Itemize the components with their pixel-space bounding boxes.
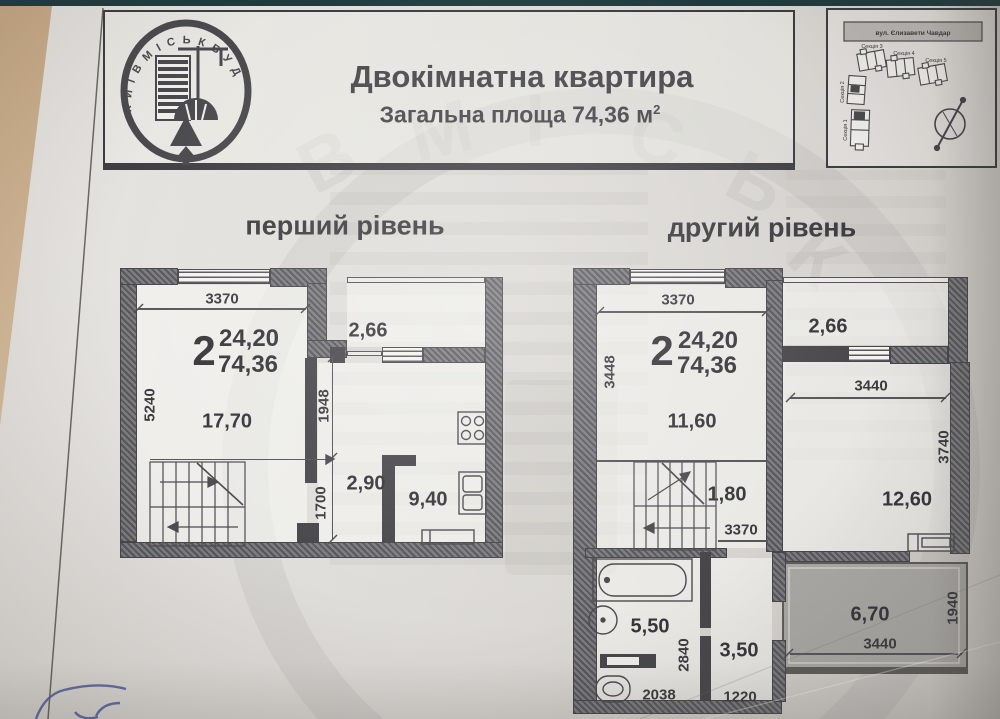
scanned-floor-plan-page: В М І С Ь К Двокімнатна квартира Загальн… — [0, 0, 1000, 719]
cabinet-icon — [908, 534, 954, 551]
page-frame-line — [48, 8, 103, 719]
kitchen-counter-icon — [422, 530, 474, 544]
kitchen-sink-icon — [459, 472, 486, 514]
toilet-icon — [596, 676, 630, 702]
dimension-ticks — [134, 304, 966, 658]
washer-counter-icon — [600, 654, 656, 668]
washbasin-icon — [589, 606, 617, 634]
paper-crease — [640, 575, 1000, 719]
bathtub-icon — [593, 559, 692, 601]
plan-drawing-overlay — [0, 0, 1000, 719]
staircase-level-2 — [634, 462, 716, 550]
paper-crease — [705, 642, 1000, 719]
staircase-level-1 — [150, 462, 245, 546]
stove-icon — [458, 412, 486, 444]
